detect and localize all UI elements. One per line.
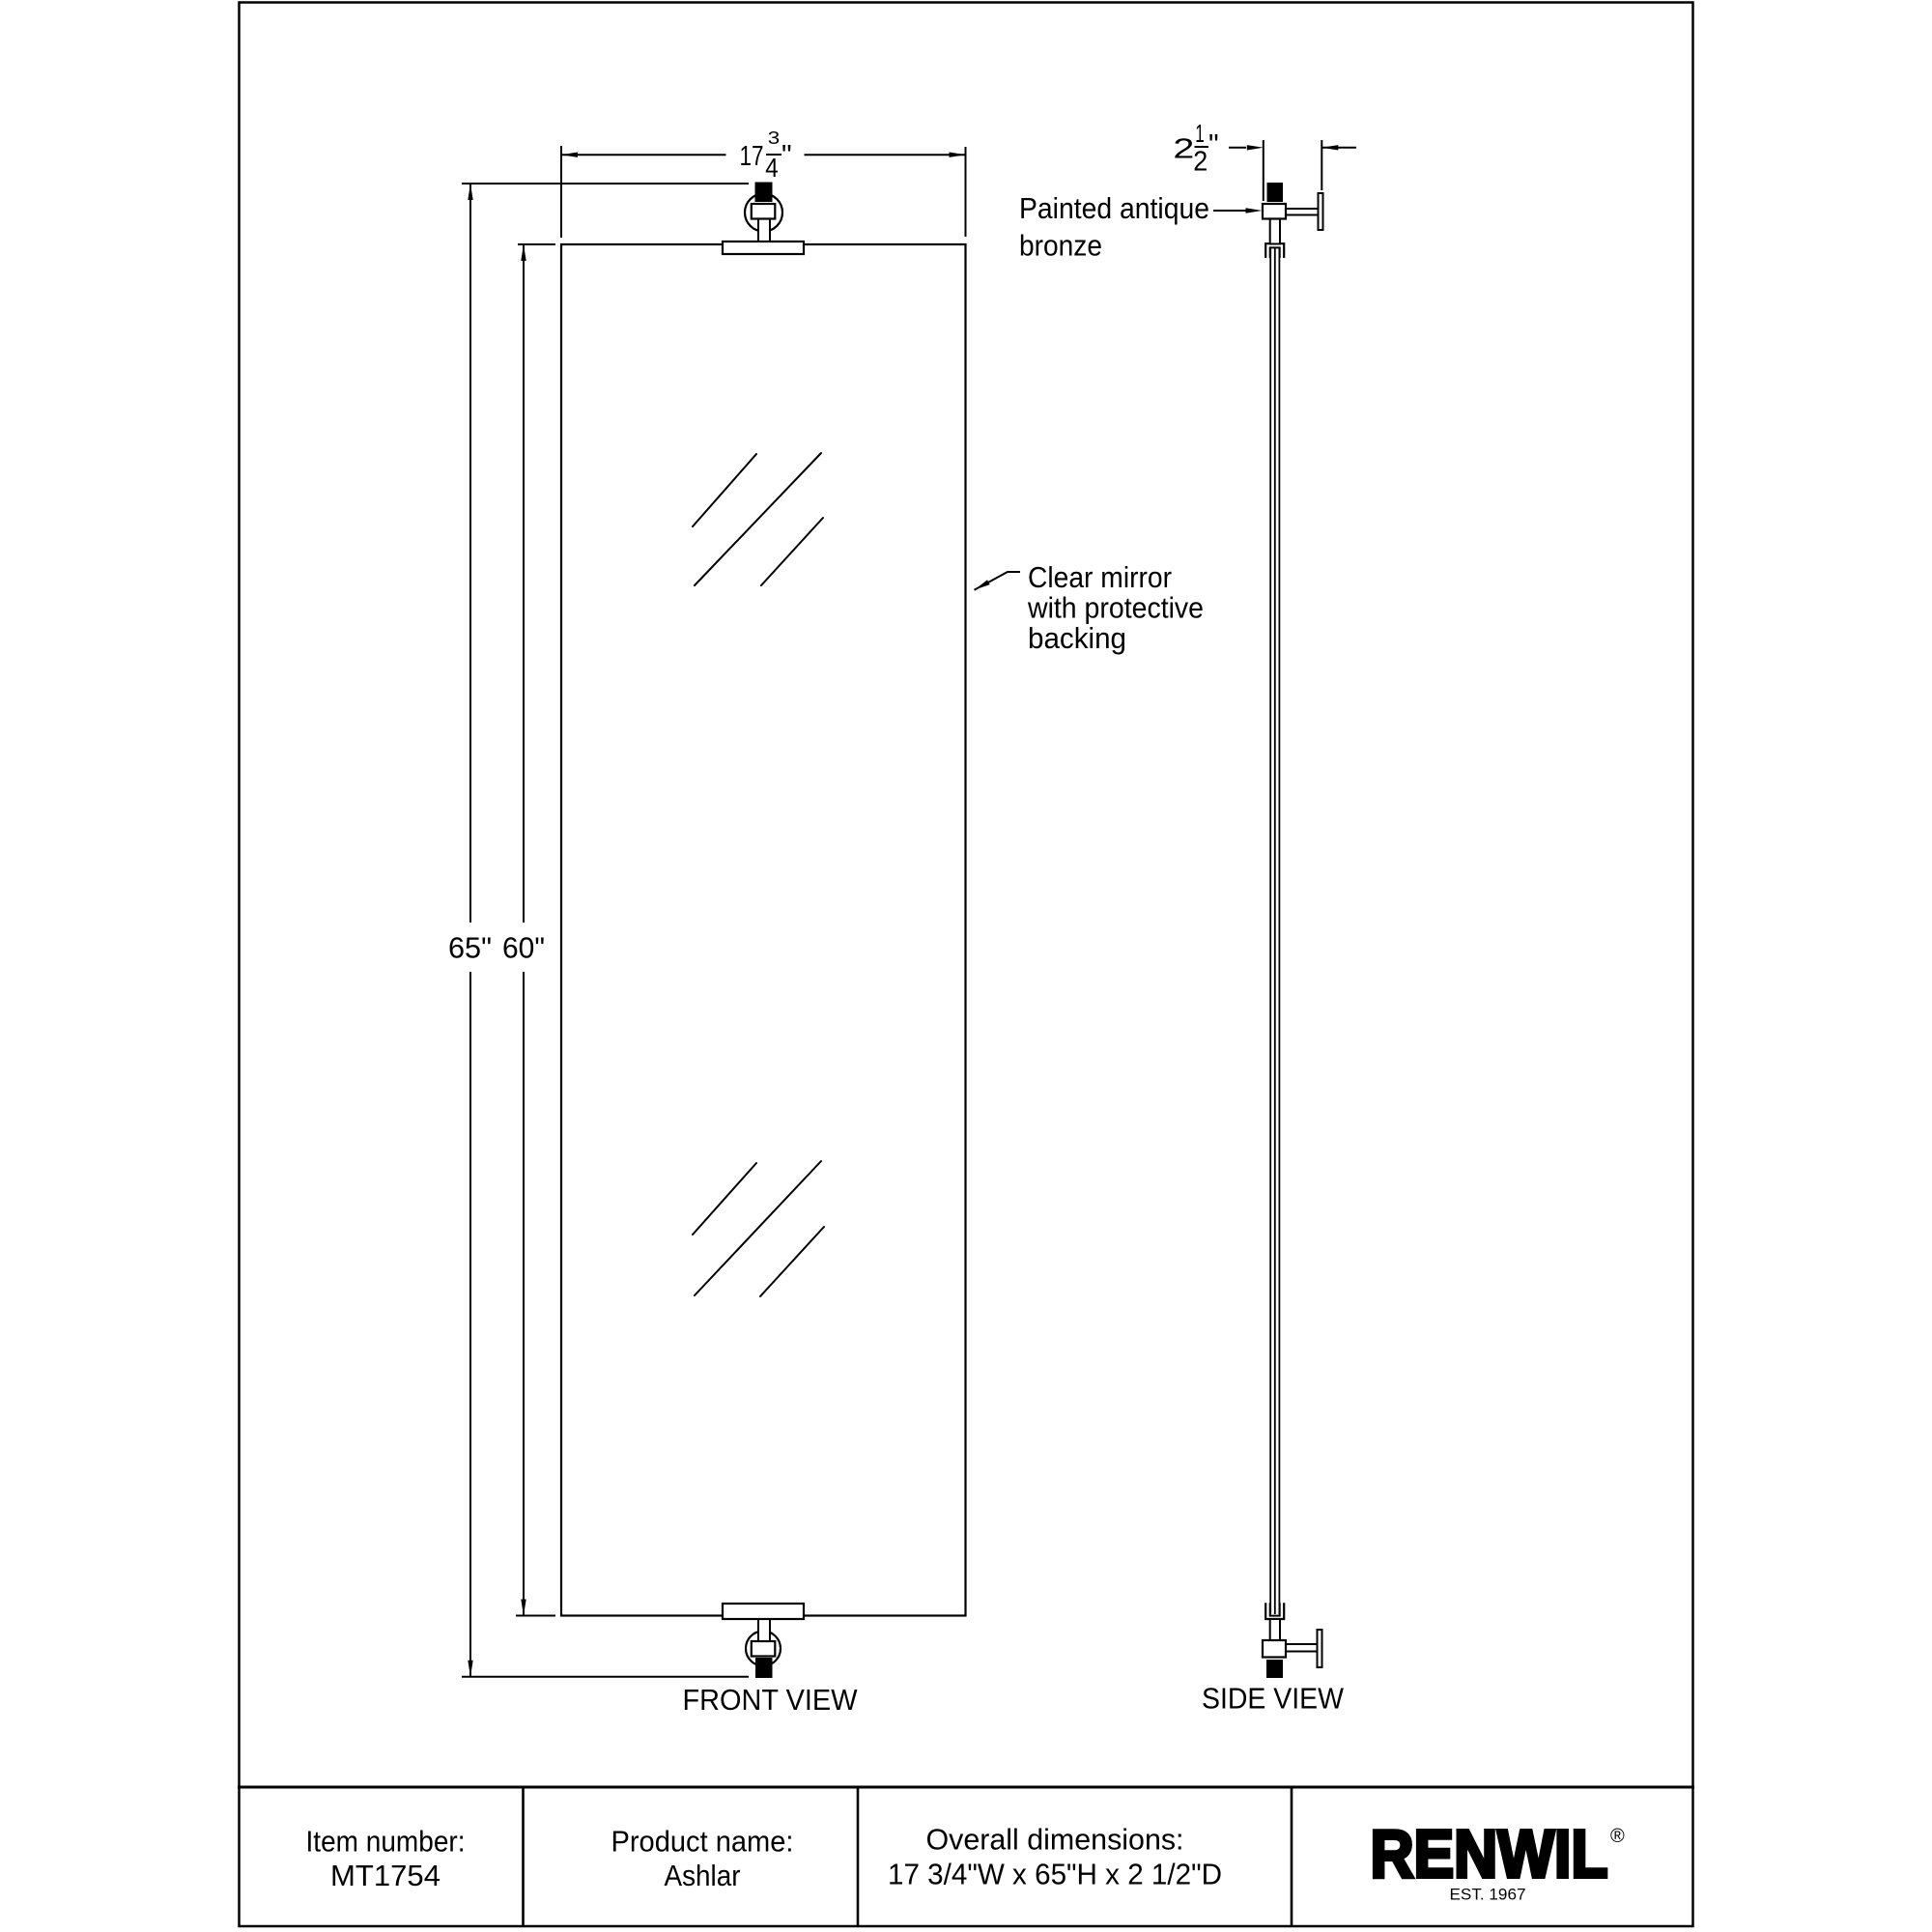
- svg-text:Ashlar: Ashlar: [665, 1859, 741, 1892]
- svg-text:bronze: bronze: [1019, 229, 1102, 263]
- svg-text:MT1754: MT1754: [330, 1859, 440, 1892]
- svg-text:FRONT VIEW: FRONT VIEW: [683, 1683, 859, 1717]
- svg-text:SIDE VIEW: SIDE VIEW: [1202, 1682, 1345, 1716]
- svg-text:with protective: with protective: [1027, 591, 1204, 625]
- svg-text:17 3/4"W x 65"H x 2 1/2"D: 17 3/4"W x 65"H x 2 1/2"D: [888, 1858, 1222, 1891]
- svg-text:Clear mirror: Clear mirror: [1028, 560, 1172, 594]
- svg-text:RENWIL: RENWIL: [1371, 1816, 1608, 1891]
- svg-text:1: 1: [1195, 119, 1205, 148]
- svg-text:Item number:: Item number:: [306, 1825, 466, 1859]
- svg-text:backing: backing: [1028, 621, 1126, 655]
- svg-text:": ": [781, 140, 792, 172]
- svg-text:60": 60": [502, 931, 545, 965]
- svg-text:2: 2: [1193, 147, 1207, 178]
- svg-text:2: 2: [1173, 134, 1194, 165]
- svg-text:65": 65": [448, 931, 492, 965]
- svg-text:17: 17: [740, 141, 764, 172]
- svg-text:EST. 1967: EST. 1967: [1450, 1886, 1526, 1904]
- svg-text:®: ®: [1610, 1826, 1625, 1847]
- svg-text:4: 4: [765, 153, 779, 183]
- svg-text:": ": [1208, 129, 1219, 161]
- svg-text:Product name:: Product name:: [611, 1825, 794, 1859]
- svg-text:Painted antique: Painted antique: [1019, 191, 1209, 225]
- svg-text:3: 3: [768, 128, 781, 148]
- svg-text:Overall dimensions:: Overall dimensions:: [926, 1823, 1184, 1857]
